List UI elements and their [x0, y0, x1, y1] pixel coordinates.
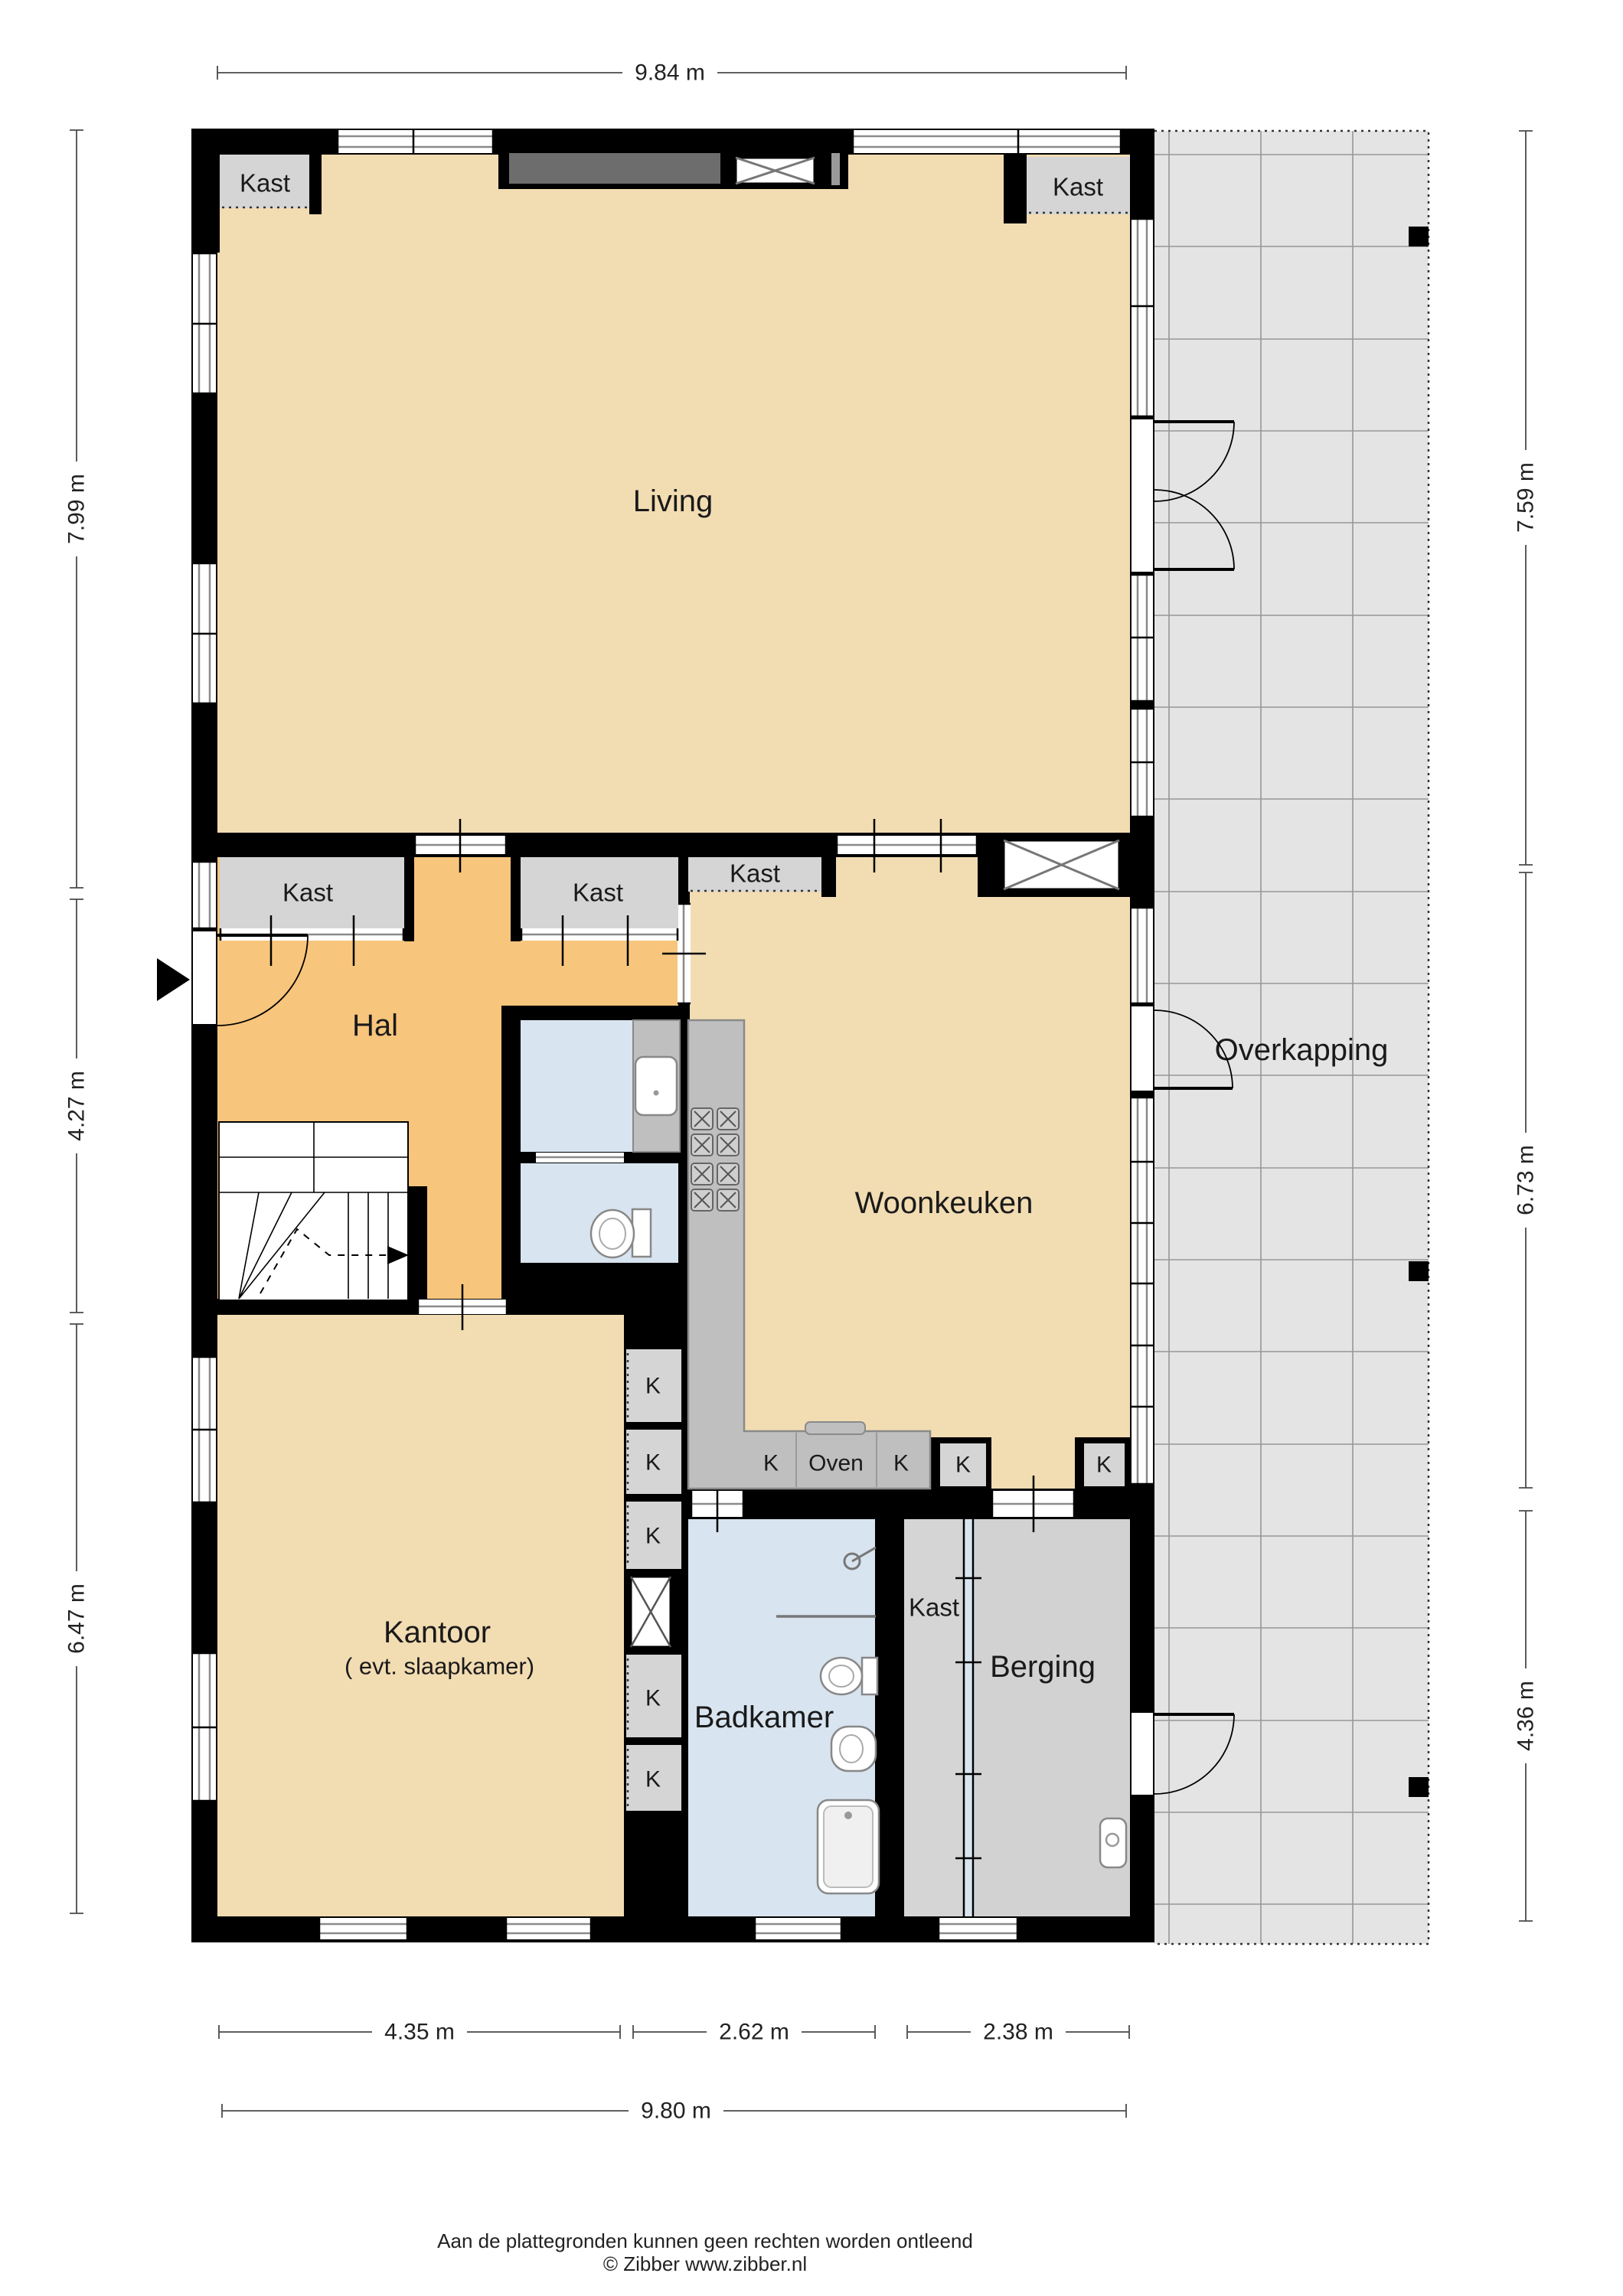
svg-text:2.62 m: 2.62 m	[719, 2020, 789, 2045]
dim-bottom-total: 9.80 m	[222, 2098, 1126, 2124]
vide-icon	[736, 158, 815, 184]
kast-label: Kast	[573, 879, 623, 907]
living-wall-vide	[1004, 840, 1119, 889]
window-icon	[318, 1918, 408, 1939]
dim-right-lower: 4.36 m	[1513, 1511, 1539, 1921]
door-washroom-toilet	[536, 1153, 624, 1163]
kast-label: Kast	[730, 859, 780, 888]
window-icon	[1132, 218, 1153, 417]
kantoor-sublabel: ( evt. slaapkamer)	[345, 1653, 534, 1680]
kast-label: Kast	[909, 1593, 959, 1622]
window-icon	[1132, 1097, 1153, 1485]
window-icon	[193, 1356, 216, 1503]
canopy-post-icon	[1409, 1777, 1429, 1797]
sink-icon	[635, 1057, 677, 1115]
svg-text:6.73 m: 6.73 m	[1514, 1145, 1539, 1215]
overkapping-label: Overkapping	[1215, 1033, 1389, 1067]
k-label: K	[645, 1450, 661, 1476]
footer-credit: © Zibber www.zibber.nl	[603, 2252, 807, 2275]
sink-icon	[1100, 1818, 1126, 1867]
dim-left-upper: 7.99 m	[64, 130, 90, 888]
woonkeuken-label: Woonkeuken	[855, 1186, 1034, 1220]
dim-left-lower: 6.47 m	[64, 1324, 90, 1913]
window-icon	[1132, 574, 1153, 702]
window-icon	[193, 563, 216, 704]
dim-bottom-badkamer: 2.62 m	[633, 2019, 875, 2045]
berging-fixtures	[1100, 1818, 1126, 1867]
washroom	[633, 1020, 680, 1152]
kantoor-label: Kantoor	[384, 1616, 491, 1649]
svg-text:6.47 m: 6.47 m	[64, 1583, 90, 1654]
floor-plan-page: Overkapping	[0, 0, 1623, 2296]
svg-text:9.84 m: 9.84 m	[635, 60, 705, 86]
k-label: K	[645, 1374, 661, 1399]
oven-label: Oven	[808, 1451, 864, 1476]
svg-text:7.59 m: 7.59 m	[1514, 462, 1539, 533]
kast-berging-column	[904, 1519, 963, 1916]
window-icon	[505, 1918, 592, 1939]
bathtub-icon	[818, 1800, 879, 1893]
dim-right-upper: 7.59 m	[1513, 131, 1539, 865]
window-icon	[852, 130, 1122, 153]
window-icon	[193, 253, 216, 394]
k-label: K	[645, 1767, 661, 1792]
badkamer-label: Badkamer	[694, 1701, 834, 1734]
k-label: K	[645, 1524, 661, 1549]
dim-bottom-kantoor: 4.35 m	[219, 2019, 620, 2045]
stairs	[219, 1122, 409, 1300]
svg-text:2.38 m: 2.38 m	[983, 2020, 1053, 2045]
k-label: K	[645, 1686, 661, 1711]
dim-left-middle: 4.27 m	[64, 899, 90, 1313]
footer-disclaimer: Aan de plattegronden kunnen geen rechten…	[437, 2229, 973, 2252]
window-icon	[938, 1918, 1018, 1939]
entry-arrow-icon	[157, 958, 190, 1001]
k-label: K	[1096, 1453, 1112, 1478]
svg-text:9.80 m: 9.80 m	[641, 2099, 711, 2124]
footer: Aan de plattegronden kunnen geen rechten…	[437, 2229, 973, 2275]
k-label: K	[763, 1451, 779, 1476]
dim-top: 9.84 m	[217, 60, 1126, 86]
k-label: K	[893, 1451, 909, 1476]
window-icon	[754, 1918, 842, 1939]
bidet-icon	[831, 1727, 876, 1771]
kast-label: Kast	[240, 169, 290, 197]
toilet-icon	[821, 1658, 877, 1694]
window-icon	[193, 861, 216, 929]
kast-label: Kast	[282, 879, 333, 907]
svg-text:7.99 m: 7.99 m	[64, 474, 90, 544]
hal-label: Hal	[352, 1009, 398, 1042]
svg-text:4.27 m: 4.27 m	[64, 1071, 90, 1141]
dim-right-middle: 6.73 m	[1513, 872, 1539, 1488]
top-wall-builtins	[509, 153, 840, 185]
cupboard-end	[831, 153, 840, 185]
media-cupboard	[509, 153, 720, 184]
window-icon	[1132, 708, 1153, 817]
toilet-icon	[591, 1209, 651, 1257]
berging-label: Berging	[990, 1650, 1096, 1684]
window-icon	[193, 1652, 216, 1802]
window-icon	[1132, 907, 1153, 1004]
svg-text:4.35 m: 4.35 m	[384, 2020, 455, 2045]
floor-plan-drawing: Overkapping	[0, 0, 1623, 2296]
svg-text:4.36 m: 4.36 m	[1514, 1681, 1539, 1751]
canopy-post-icon	[1409, 1261, 1429, 1281]
shaft-icon	[631, 1577, 671, 1647]
kast-label: Kast	[1053, 173, 1103, 201]
sink-icon	[805, 1422, 865, 1434]
window-icon	[337, 130, 494, 153]
living-label: Living	[633, 484, 714, 518]
canopy-post-icon	[1409, 227, 1429, 246]
overkapping-area: Overkapping	[1154, 131, 1429, 1944]
dim-bottom-berging: 2.38 m	[907, 2019, 1129, 2045]
k-label: K	[955, 1453, 971, 1478]
